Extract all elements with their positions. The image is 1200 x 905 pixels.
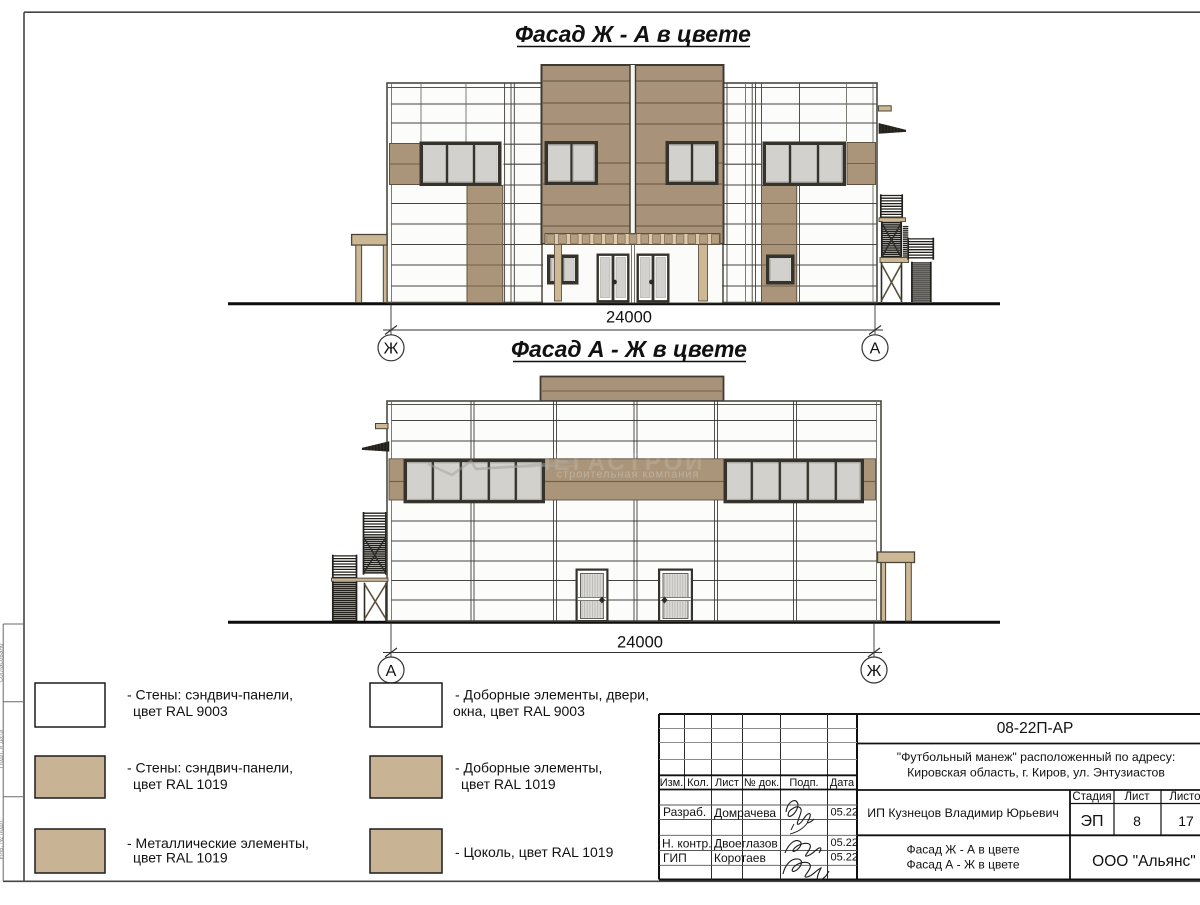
svg-text:Подп. и дата: Подп. и дата bbox=[0, 729, 5, 768]
svg-text:05.22: 05.22 bbox=[831, 807, 859, 819]
svg-text:24000: 24000 bbox=[617, 634, 663, 652]
svg-text:- Цоколь, цвет RAL 1019: - Цоколь, цвет RAL 1019 bbox=[455, 844, 614, 860]
svg-text:Стадия: Стадия bbox=[1072, 791, 1111, 803]
svg-text:окна, цвет RAL 9003: окна, цвет RAL 9003 bbox=[453, 703, 585, 719]
svg-text:цвет RAL 1019: цвет RAL 1019 bbox=[133, 850, 228, 866]
svg-text:Листов: Листов bbox=[1169, 791, 1200, 803]
svg-text:Разраб.: Разраб. bbox=[663, 805, 706, 819]
svg-text:цвет RAL 1019: цвет RAL 1019 bbox=[461, 776, 556, 792]
svg-text:Кировская область, г. Киров, у: Кировская область, г. Киров, ул. Энтузиа… bbox=[907, 766, 1165, 780]
svg-text:Согласовано: Согласовано bbox=[0, 643, 5, 682]
svg-text:ИП Кузнецов Владимир Юрьевич: ИП Кузнецов Владимир Юрьевич bbox=[867, 806, 1059, 820]
svg-text:№ док.: № док. bbox=[744, 777, 779, 789]
svg-text:Коротаев: Коротаев bbox=[714, 851, 766, 865]
svg-text:ГИП: ГИП bbox=[663, 851, 687, 865]
svg-text:- Доборные элементы, двери,: - Доборные элементы, двери, bbox=[455, 687, 649, 703]
svg-text:Ж: Ж bbox=[867, 663, 882, 680]
svg-text:цвет RAL 9003: цвет RAL 9003 bbox=[133, 703, 228, 719]
svg-text:Лист: Лист bbox=[715, 777, 739, 789]
svg-text:Двоеглазов: Двоеглазов bbox=[714, 837, 778, 851]
svg-text:Лист: Лист bbox=[1125, 791, 1151, 803]
svg-text:8: 8 bbox=[1133, 813, 1141, 829]
svg-text:17: 17 bbox=[1178, 813, 1194, 829]
svg-text:- Стены: сэндвич-панели,: - Стены: сэндвич-панели, bbox=[127, 687, 293, 703]
svg-text:строительная компания: строительная компания bbox=[557, 469, 700, 481]
svg-text:Фасад Ж - А в цвете: Фасад Ж - А в цвете bbox=[515, 21, 751, 47]
svg-text:Домрачева: Домрачева bbox=[714, 806, 776, 820]
svg-text:Фасад А - Ж в цвете: Фасад А - Ж в цвете bbox=[511, 336, 747, 362]
svg-text:Ж: Ж bbox=[384, 341, 399, 358]
svg-text:ЭП: ЭП bbox=[1081, 813, 1104, 830]
svg-text:05.22: 05.22 bbox=[831, 837, 859, 849]
svg-text:Дата: Дата bbox=[830, 777, 855, 789]
svg-text:24000: 24000 bbox=[606, 309, 652, 327]
svg-text:- Доборные элементы,: - Доборные элементы, bbox=[455, 760, 602, 776]
svg-text:Кол.: Кол. bbox=[687, 777, 709, 789]
svg-text:А: А bbox=[870, 341, 881, 358]
svg-text:"Футбольный манеж" расположенн: "Футбольный манеж" расположенный по адре… bbox=[897, 750, 1176, 764]
svg-text:05.22: 05.22 bbox=[831, 852, 859, 864]
svg-text:Н. контр.: Н. контр. bbox=[662, 837, 712, 851]
svg-text:08-22П-АР: 08-22П-АР bbox=[997, 720, 1074, 737]
svg-text:цвет RAL 1019: цвет RAL 1019 bbox=[133, 776, 228, 792]
svg-text:Изм.: Изм. bbox=[660, 777, 684, 789]
svg-text:Фасад А - Ж в цвете: Фасад А - Ж в цвете bbox=[906, 858, 1019, 872]
svg-text:Фасад Ж - А в цвете: Фасад Ж - А в цвете bbox=[906, 843, 1019, 857]
svg-text:- Стены: сэндвич-панели,: - Стены: сэндвич-панели, bbox=[127, 760, 293, 776]
svg-text:Подп.: Подп. bbox=[789, 777, 818, 789]
svg-text:А: А bbox=[386, 663, 397, 680]
svg-text:ООО "Альянс": ООО "Альянс" bbox=[1092, 853, 1196, 870]
svg-text:Инв. № подл.: Инв. № подл. bbox=[0, 819, 5, 860]
